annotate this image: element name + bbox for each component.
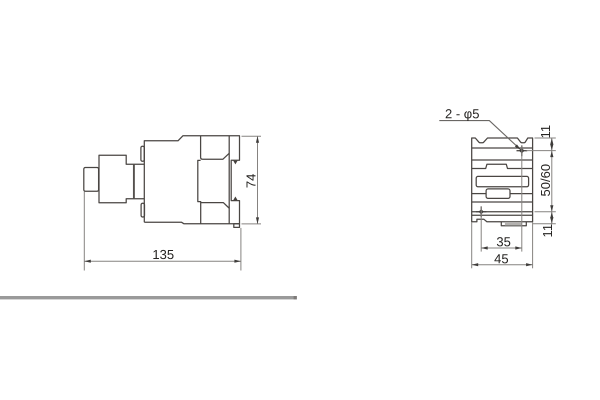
- svg-text:45: 45: [494, 251, 508, 266]
- svg-text:74: 74: [243, 174, 258, 188]
- svg-text:135: 135: [152, 247, 174, 262]
- svg-text:35: 35: [496, 234, 510, 249]
- svg-text:50/60: 50/60: [538, 164, 553, 197]
- svg-text:11: 11: [538, 125, 553, 139]
- svg-text:2 - φ5: 2 - φ5: [445, 106, 479, 121]
- svg-text:11: 11: [540, 224, 555, 238]
